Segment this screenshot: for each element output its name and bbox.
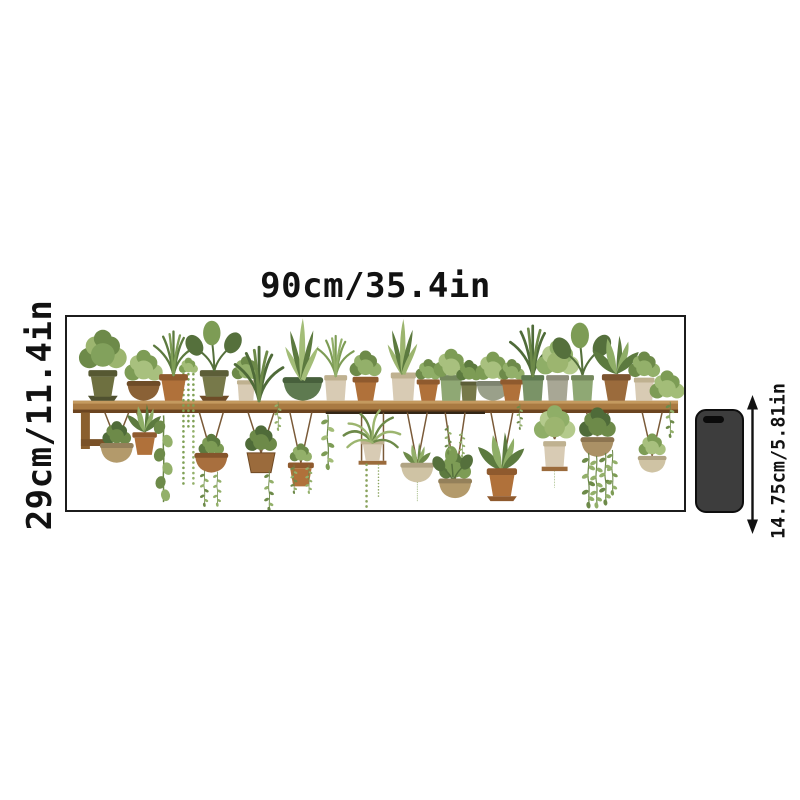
- hanging-planter: [534, 405, 575, 489]
- phone-size-reference: [695, 409, 744, 513]
- hanging-vine: [152, 415, 174, 502]
- plant-shelf-illustration: [67, 317, 684, 510]
- decal-artwork-frame: [65, 315, 686, 512]
- potted-plant: [79, 330, 127, 401]
- hanging-planter: [478, 432, 524, 501]
- hanging-planter: [400, 443, 434, 503]
- height-dimension-label: 29cm/11.4in: [20, 300, 60, 531]
- phone-height-label: 14.75cm/5.81in: [769, 383, 790, 539]
- hanging-planter: [100, 421, 134, 463]
- hanging-planter: [245, 425, 277, 510]
- hanging-planter: [638, 433, 667, 472]
- hanging-vine: [320, 414, 335, 470]
- potted-plant: [283, 318, 324, 400]
- height-arrow-icon: [744, 394, 761, 535]
- hanging-planter: [194, 434, 228, 507]
- hanging-planter: [430, 425, 476, 498]
- potted-plant: [385, 319, 419, 401]
- potted-plant: [318, 336, 354, 401]
- product-image: 90cm/35.4in 29cm/11.4in: [0, 0, 800, 800]
- width-dimension-label: 90cm/35.4in: [65, 266, 686, 306]
- potted-plant: [350, 350, 382, 400]
- potted-plant: [125, 350, 163, 401]
- hanging-planter: [344, 411, 400, 510]
- phone-camera-icon: [703, 416, 724, 423]
- hanging-planter: [288, 443, 314, 494]
- hanging-planter: [579, 407, 618, 508]
